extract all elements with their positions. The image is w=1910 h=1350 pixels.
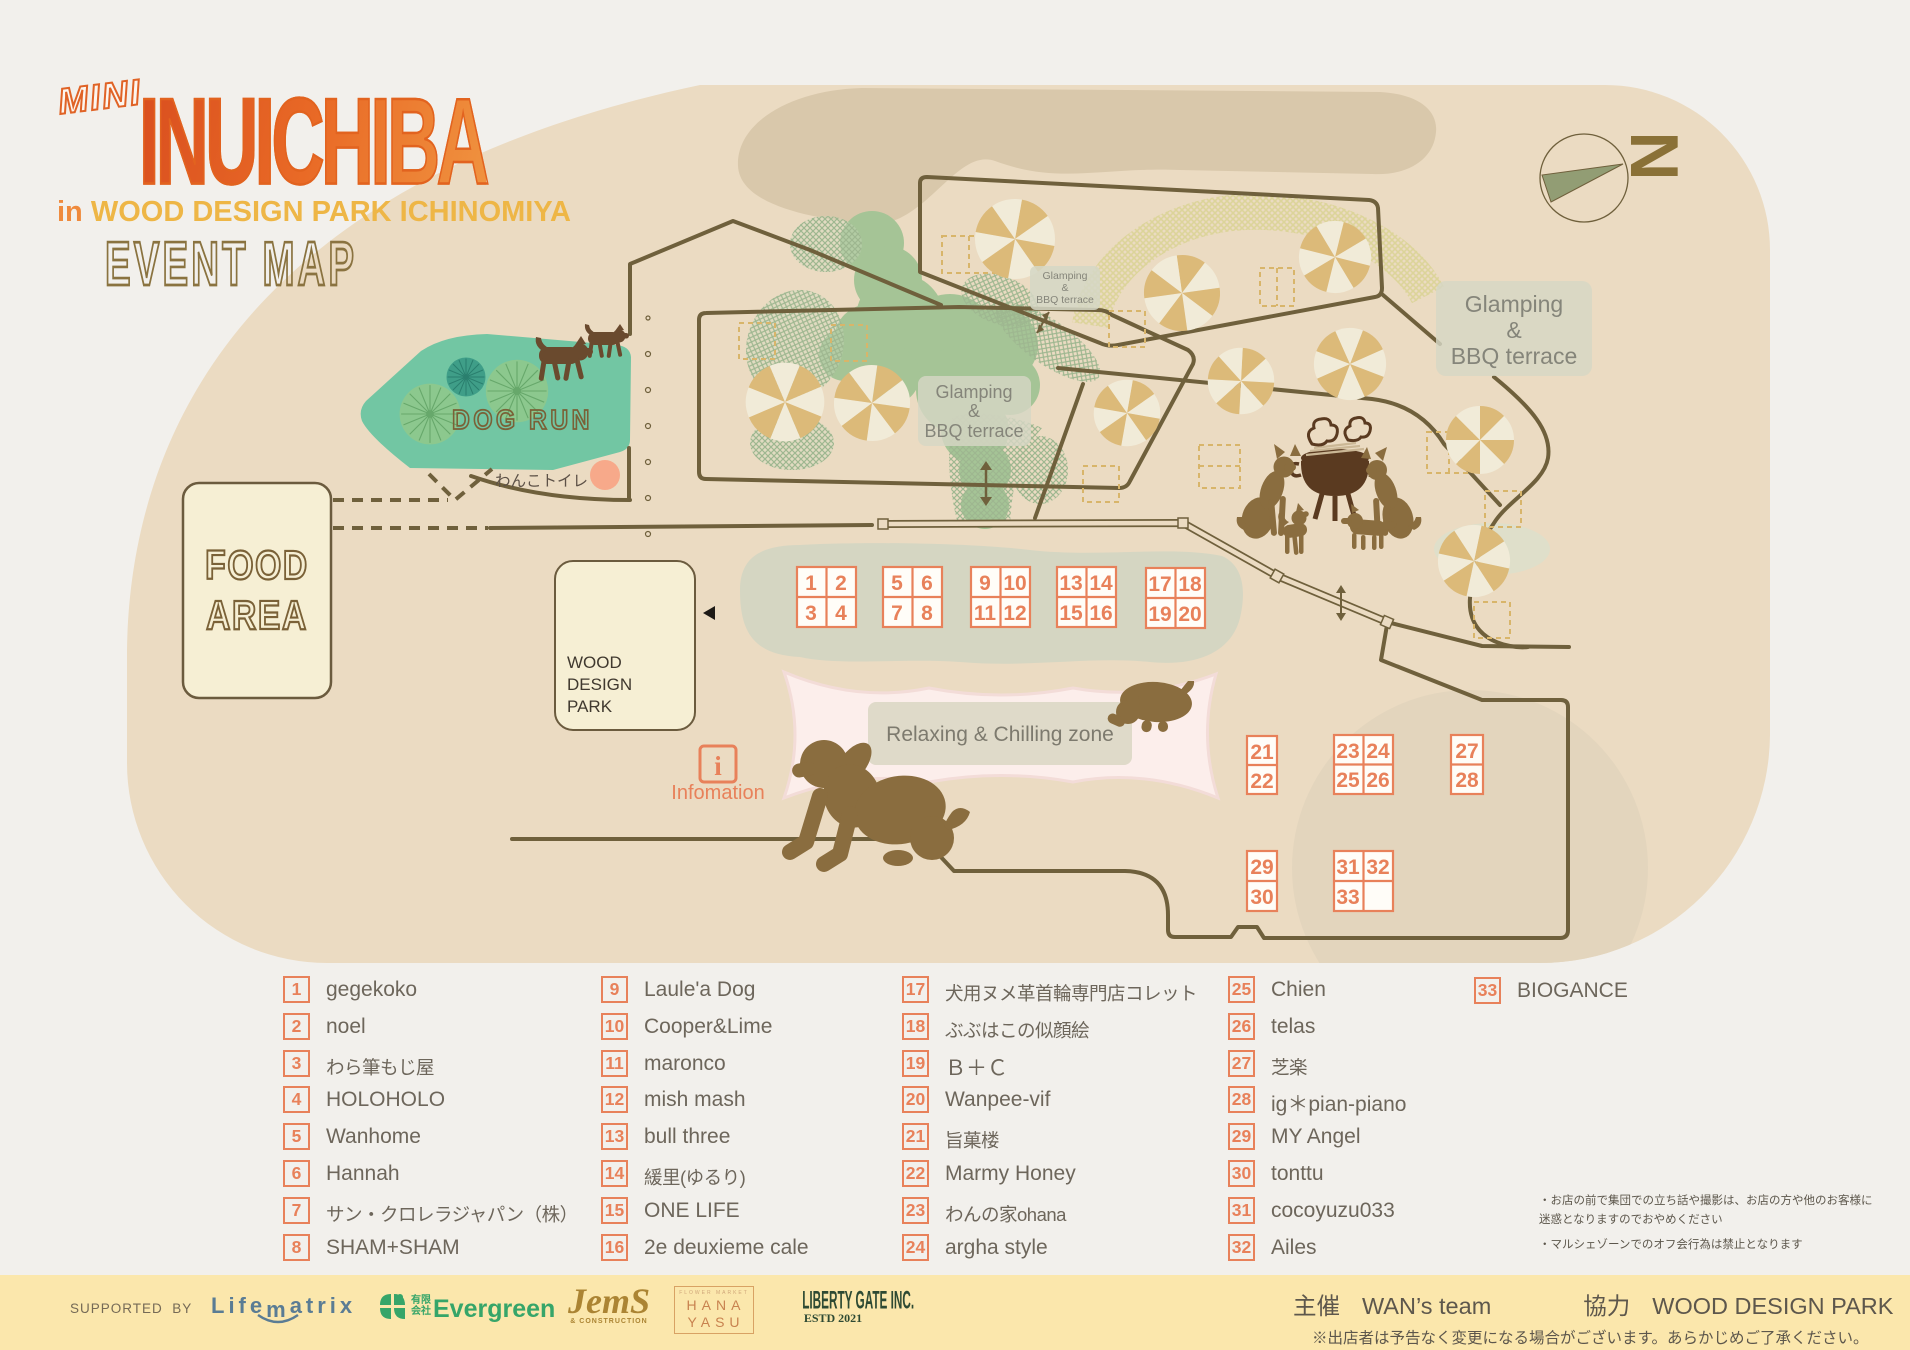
svg-text:&: & (1506, 317, 1521, 343)
svg-text:12: 12 (1003, 602, 1026, 625)
svg-text:20: 20 (1178, 603, 1201, 626)
svg-text:27: 27 (1455, 740, 1478, 763)
svg-text:Relaxing & Chilling zone: Relaxing & Chilling zone (886, 723, 1114, 746)
svg-text:DESIGN: DESIGN (567, 675, 632, 694)
svg-text:11: 11 (974, 602, 997, 625)
svg-text:7: 7 (891, 602, 903, 625)
svg-text:BBQ terrace: BBQ terrace (924, 421, 1023, 441)
svg-text:30: 30 (1250, 886, 1273, 909)
svg-text:21: 21 (1250, 741, 1274, 764)
svg-text:Glamping: Glamping (935, 382, 1012, 402)
svg-text:18: 18 (1178, 573, 1202, 596)
svg-text:24: 24 (1366, 740, 1390, 763)
svg-text:31: 31 (1336, 856, 1360, 879)
svg-text:10: 10 (1003, 572, 1026, 595)
svg-text:23: 23 (1336, 740, 1359, 763)
svg-text:6: 6 (921, 572, 933, 595)
svg-text:3: 3 (805, 602, 817, 625)
svg-text:WOOD: WOOD (567, 653, 622, 672)
svg-text:&: & (968, 401, 980, 421)
svg-text:i: i (714, 751, 722, 781)
svg-text:16: 16 (1089, 602, 1112, 625)
svg-text:PARK: PARK (567, 697, 613, 716)
svg-text:28: 28 (1455, 769, 1479, 792)
svg-text:4: 4 (835, 602, 847, 625)
svg-text:Glamping: Glamping (1465, 291, 1563, 317)
svg-text:8: 8 (921, 602, 933, 625)
svg-text:Glamping: Glamping (1043, 270, 1088, 282)
svg-text:わんこトイレ: わんこトイレ (495, 472, 588, 490)
svg-text:N: N (1616, 131, 1692, 180)
svg-text:29: 29 (1250, 856, 1273, 879)
svg-text:5: 5 (891, 572, 903, 595)
svg-text:1: 1 (805, 572, 817, 595)
svg-text:BBQ terrace: BBQ terrace (1036, 294, 1094, 306)
svg-text:33: 33 (1336, 886, 1359, 909)
svg-text:15: 15 (1059, 602, 1083, 625)
svg-text:14: 14 (1089, 572, 1113, 595)
svg-text:26: 26 (1366, 769, 1389, 792)
svg-text:BBQ terrace: BBQ terrace (1451, 343, 1578, 369)
svg-text:9: 9 (979, 572, 991, 595)
svg-text:13: 13 (1059, 572, 1082, 595)
svg-text:25: 25 (1336, 769, 1360, 792)
svg-text:Infomation: Infomation (671, 782, 764, 804)
svg-text:17: 17 (1148, 573, 1171, 596)
svg-text:22: 22 (1250, 770, 1273, 793)
svg-text:32: 32 (1366, 856, 1389, 879)
svg-text:2: 2 (835, 572, 847, 595)
svg-text:&: & (1061, 282, 1068, 294)
svg-text:19: 19 (1148, 603, 1171, 626)
